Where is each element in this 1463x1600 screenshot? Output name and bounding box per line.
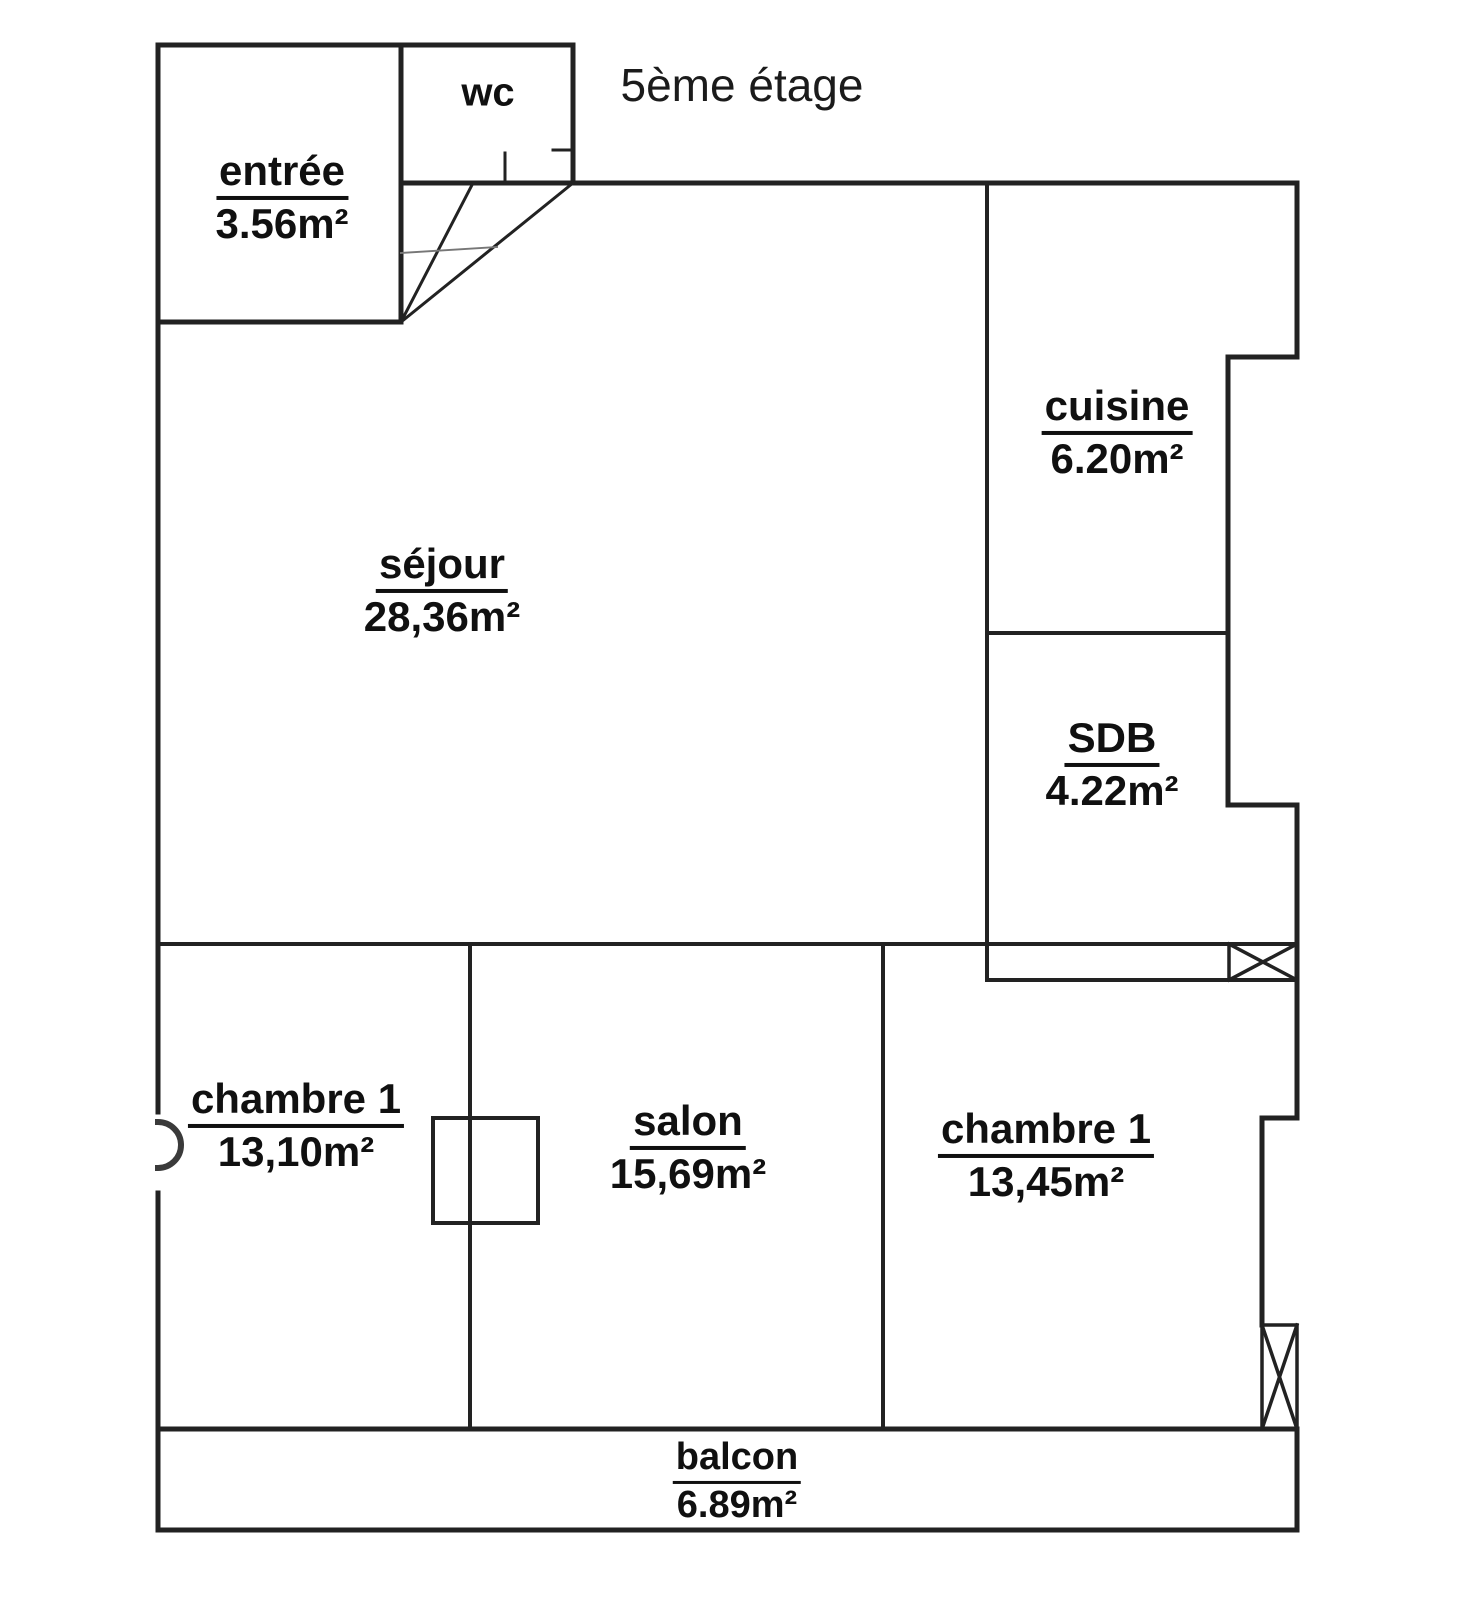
room-label-entree: entrée 3.56m² [215, 147, 348, 247]
room-label-wc: wc [458, 71, 517, 118]
room-area-sdb: 4.22m² [1045, 767, 1178, 814]
room-name-balcon: balcon [673, 1436, 801, 1484]
duct-symbol-balcony-icon [1262, 1325, 1297, 1429]
room-name-cuisine: cuisine [1042, 382, 1193, 435]
room-label-sdb: SDB 4.22m² [1045, 714, 1178, 814]
stair-faint-line [401, 247, 497, 253]
room-label-salon: salon 15,69m² [610, 1097, 766, 1197]
room-area-salon: 15,69m² [610, 1150, 766, 1197]
wardrobe-box [433, 1118, 538, 1223]
room-name-sdb: SDB [1065, 714, 1160, 767]
room-area-cuisine: 6.20m² [1042, 435, 1193, 482]
room-area-chambre1-left: 13,10m² [188, 1128, 404, 1175]
floorplan-page: 5ème étage entrée 3.56m² wc cuisine 6.20… [0, 0, 1463, 1600]
door-jamb-ticks [505, 150, 573, 183]
duct-symbol-sdb-icon [1229, 944, 1297, 980]
room-name-entree: entrée [216, 147, 348, 200]
room-area-balcon: 6.89m² [673, 1484, 801, 1527]
stair-lines [401, 183, 573, 322]
left-door-arc-icon [158, 1122, 181, 1168]
room-name-chambre1-right: chambre 1 [938, 1105, 1154, 1158]
room-label-chambre1-left: chambre 1 13,10m² [188, 1075, 404, 1175]
floor-title: 5ème étage [621, 58, 864, 112]
room-name-salon: salon [630, 1097, 746, 1150]
room-area-chambre1-right: 13,45m² [938, 1158, 1154, 1205]
room-label-balcon: balcon 6.89m² [673, 1436, 801, 1526]
room-label-chambre1-right: chambre 1 13,45m² [938, 1105, 1154, 1205]
room-area-entree: 3.56m² [215, 200, 348, 247]
room-label-sejour: séjour 28,36m² [364, 540, 520, 640]
room-name-wc: wc [458, 71, 517, 118]
room-name-sejour: séjour [376, 540, 508, 593]
room-name-chambre1-left: chambre 1 [188, 1075, 404, 1128]
room-area-sejour: 28,36m² [364, 593, 520, 640]
room-label-cuisine: cuisine 6.20m² [1042, 382, 1193, 482]
